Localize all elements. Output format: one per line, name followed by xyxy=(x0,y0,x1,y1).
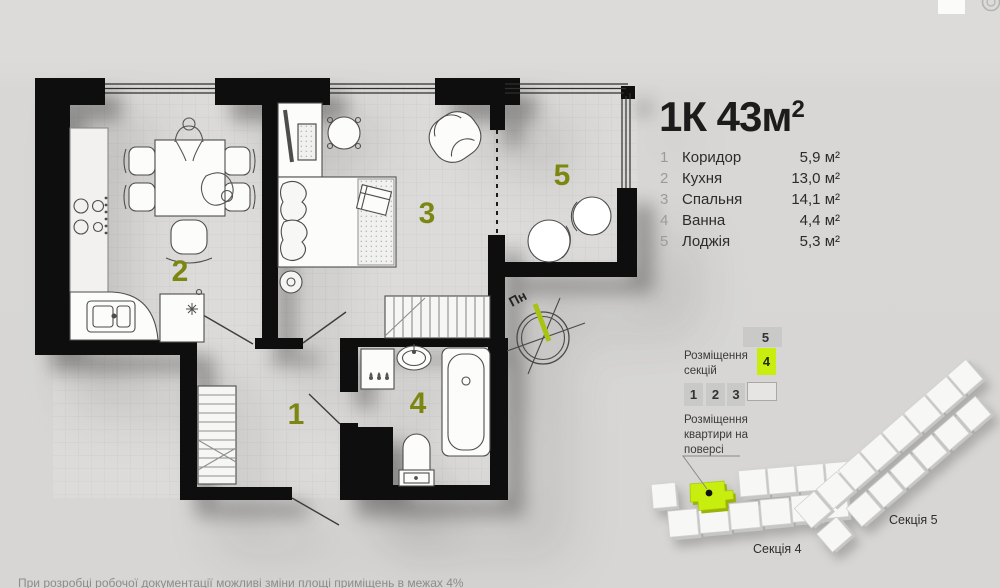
room-number-1: 1 xyxy=(288,398,305,431)
washing-machine-icon xyxy=(361,349,394,389)
desk xyxy=(278,103,322,177)
legend-area: 13,0 м² xyxy=(791,168,840,189)
apartment-marker-dot xyxy=(706,490,713,497)
north-needle xyxy=(535,304,549,341)
legend-num: 4 xyxy=(660,210,682,231)
title-superscript: 2 xyxy=(791,96,804,123)
fridge-icon xyxy=(160,290,204,343)
section5-label: Секція 5 xyxy=(889,513,938,527)
hall-wardrobe xyxy=(198,386,236,484)
stool-icon xyxy=(280,271,302,293)
disclaimer-text: При розробці робочої документації можлив… xyxy=(18,576,464,588)
legend-name: Спальня xyxy=(682,189,791,210)
logo-fragment xyxy=(938,0,1000,14)
office-chair-icon xyxy=(328,117,361,149)
section-box-empty[interactable] xyxy=(747,382,777,401)
legend-name: Лоджія xyxy=(682,231,800,252)
legend-name: Кухня xyxy=(682,168,791,189)
section-box-5[interactable]: 5 xyxy=(743,327,782,347)
compass: Пн xyxy=(506,288,585,374)
page-title: 1К 43м2 xyxy=(659,96,805,138)
floorplan-page: 1 2 3 4 5 Пн xyxy=(0,0,1000,588)
legend-row-koridor: 1 Коридор 5,9 м² xyxy=(660,147,840,168)
section-widget-label: Розміщення секцій xyxy=(684,349,752,379)
legend-area: 4,4 м² xyxy=(800,210,840,231)
legend-area: 14,1 м² xyxy=(791,189,840,210)
legend-name: Ванна xyxy=(682,210,800,231)
room-number-4: 4 xyxy=(410,387,427,420)
legend-row-kukhnia: 2 Кухня 13,0 м² xyxy=(660,168,840,189)
legend-num: 5 xyxy=(660,231,682,252)
toilet-icon xyxy=(399,434,434,486)
legend-row-lodzhiia: 5 Лоджія 5,3 м² xyxy=(660,231,840,252)
section-box-2[interactable]: 2 xyxy=(706,383,725,406)
legend-area: 5,9 м² xyxy=(800,147,840,168)
section4-label: Секція 4 xyxy=(753,542,802,556)
room-number-5: 5 xyxy=(554,159,571,192)
bedroom-wardrobe xyxy=(385,296,490,338)
legend-area: 5,3 м² xyxy=(800,231,840,252)
room-number-2: 2 xyxy=(172,255,189,288)
bed xyxy=(278,177,396,267)
north-label: Пн xyxy=(506,288,529,310)
legend-row-vanna: 4 Ванна 4,4 м² xyxy=(660,210,840,231)
bathtub-icon xyxy=(442,348,490,456)
legend-num: 1 xyxy=(660,147,682,168)
section-box-3[interactable]: 3 xyxy=(727,383,745,406)
kitchen-sink-icon xyxy=(87,301,135,332)
legend-num: 3 xyxy=(660,189,682,210)
room-number-3: 3 xyxy=(419,197,436,230)
room-legend: 1 Коридор 5,9 м² 2 Кухня 13,0 м² 3 Спаль… xyxy=(660,147,840,252)
section-box-1[interactable]: 1 xyxy=(684,383,703,406)
legend-num: 2 xyxy=(660,168,682,189)
legend-row-spalnia: 3 Спальня 14,1 м² xyxy=(660,189,840,210)
legend-name: Коридор xyxy=(682,147,800,168)
floorplan-canvas: 1 2 3 4 5 Пн xyxy=(0,0,1000,588)
section-box-4-active[interactable]: 4 xyxy=(757,348,776,375)
floor-placement-label: Розміщення квартири на поверсі xyxy=(684,413,764,458)
